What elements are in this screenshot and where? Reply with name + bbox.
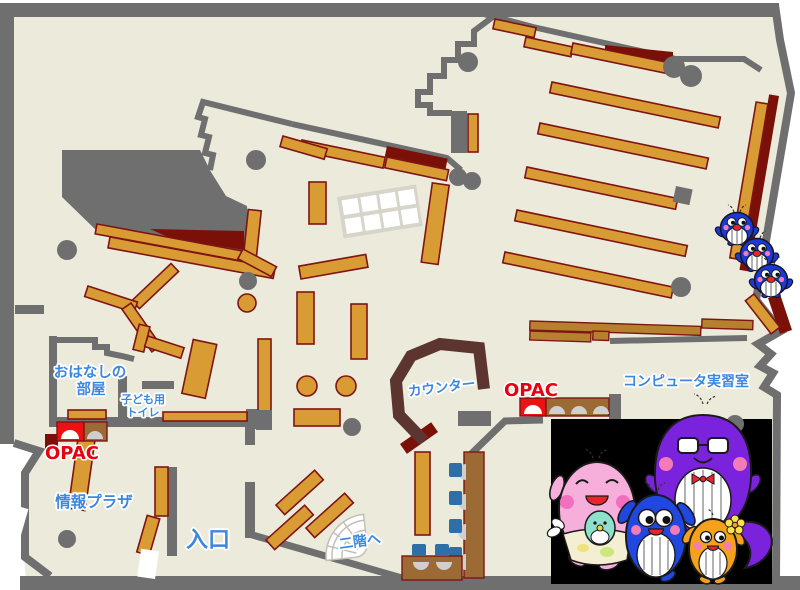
label-info-plaza: 情報プラザ xyxy=(55,492,133,511)
label-storytelling-room-1: おはなしの xyxy=(54,364,127,381)
label-opac-right: OPAC xyxy=(504,380,558,401)
opac-terminal-left xyxy=(57,422,107,441)
library-floor-map: おはなしの 部屋 子ども用 トイレ OPAC 情報プラザ 入口 カウンター OP… xyxy=(0,0,800,590)
floor-map-canvas: おはなしの 部屋 子ども用 トイレ OPAC 情報プラザ 入口 カウンター OP… xyxy=(0,0,800,590)
label-kids-toilet-2: トイレ xyxy=(127,406,160,419)
label-kids-toilet-1: 子ども用 xyxy=(121,393,165,406)
label-storytelling-room-2: 部屋 xyxy=(77,380,106,398)
teal-baby-whale-mascot xyxy=(585,511,615,545)
mascot-family-panel xyxy=(546,394,772,585)
label-entrance: 入口 xyxy=(186,528,230,553)
label-opac-left: OPAC xyxy=(45,443,99,464)
label-computer-room: コンピュータ実習室 xyxy=(623,373,749,390)
